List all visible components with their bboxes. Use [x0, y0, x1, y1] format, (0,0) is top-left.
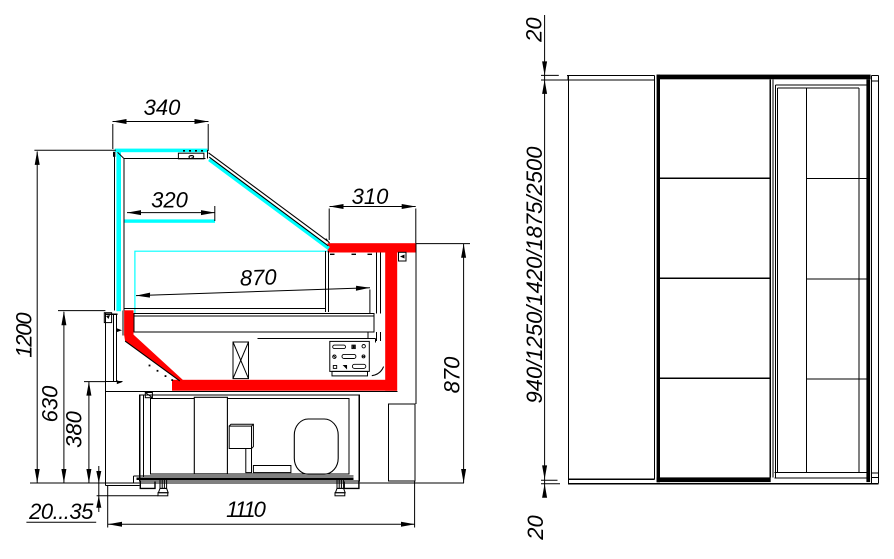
svg-text:870: 870	[239, 264, 277, 290]
svg-text:20...35: 20...35	[28, 499, 94, 524]
svg-text:630: 630	[38, 385, 63, 422]
svg-text:20: 20	[522, 17, 547, 43]
svg-text:1200: 1200	[12, 312, 37, 358]
svg-text:20: 20	[523, 515, 548, 541]
svg-text:870: 870	[440, 356, 465, 393]
svg-text:380: 380	[62, 410, 87, 447]
svg-text:310: 310	[352, 184, 389, 209]
svg-text:1110: 1110	[226, 497, 266, 522]
svg-text:940/1250/1420/1875/2500: 940/1250/1420/1875/2500	[522, 146, 547, 404]
svg-text:340: 340	[144, 95, 181, 120]
svg-text:320: 320	[151, 188, 188, 213]
